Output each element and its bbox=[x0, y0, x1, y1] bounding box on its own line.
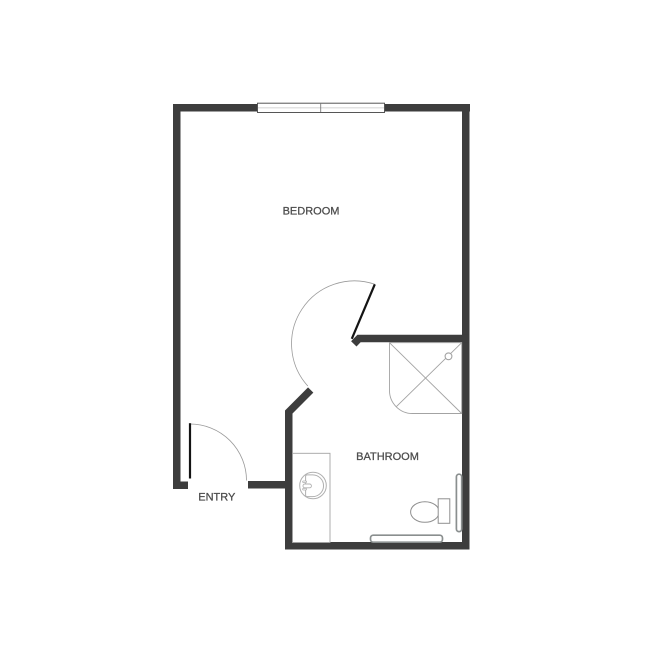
svg-text:ENTRY: ENTRY bbox=[198, 492, 236, 504]
svg-text:BATHROOM: BATHROOM bbox=[356, 451, 419, 463]
svg-text:BEDROOM: BEDROOM bbox=[283, 206, 340, 218]
